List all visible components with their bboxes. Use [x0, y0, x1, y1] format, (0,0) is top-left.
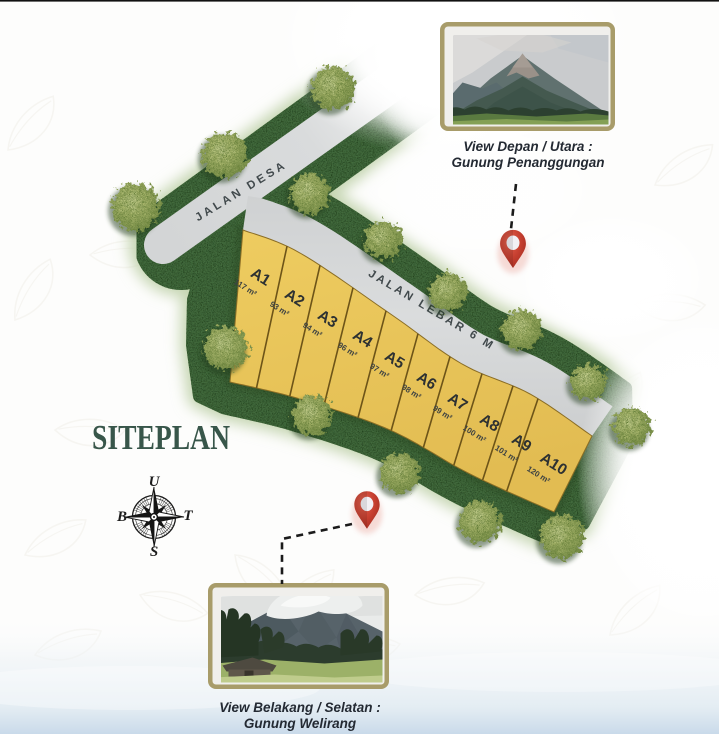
svg-text:View Depan / Utara :: View Depan / Utara : [463, 139, 592, 154]
svg-text:B: B [116, 509, 127, 525]
svg-text:Gunung Welirang: Gunung Welirang [244, 716, 357, 731]
svg-text:S: S [150, 544, 158, 560]
svg-text:Gunung Penanggungan: Gunung Penanggungan [452, 155, 605, 170]
svg-text:SITEPLAN: SITEPLAN [92, 418, 230, 457]
svg-text:View Belakang / Selatan :: View Belakang / Selatan : [219, 700, 381, 715]
svg-text:T: T [183, 508, 193, 524]
svg-text:U: U [149, 474, 161, 490]
